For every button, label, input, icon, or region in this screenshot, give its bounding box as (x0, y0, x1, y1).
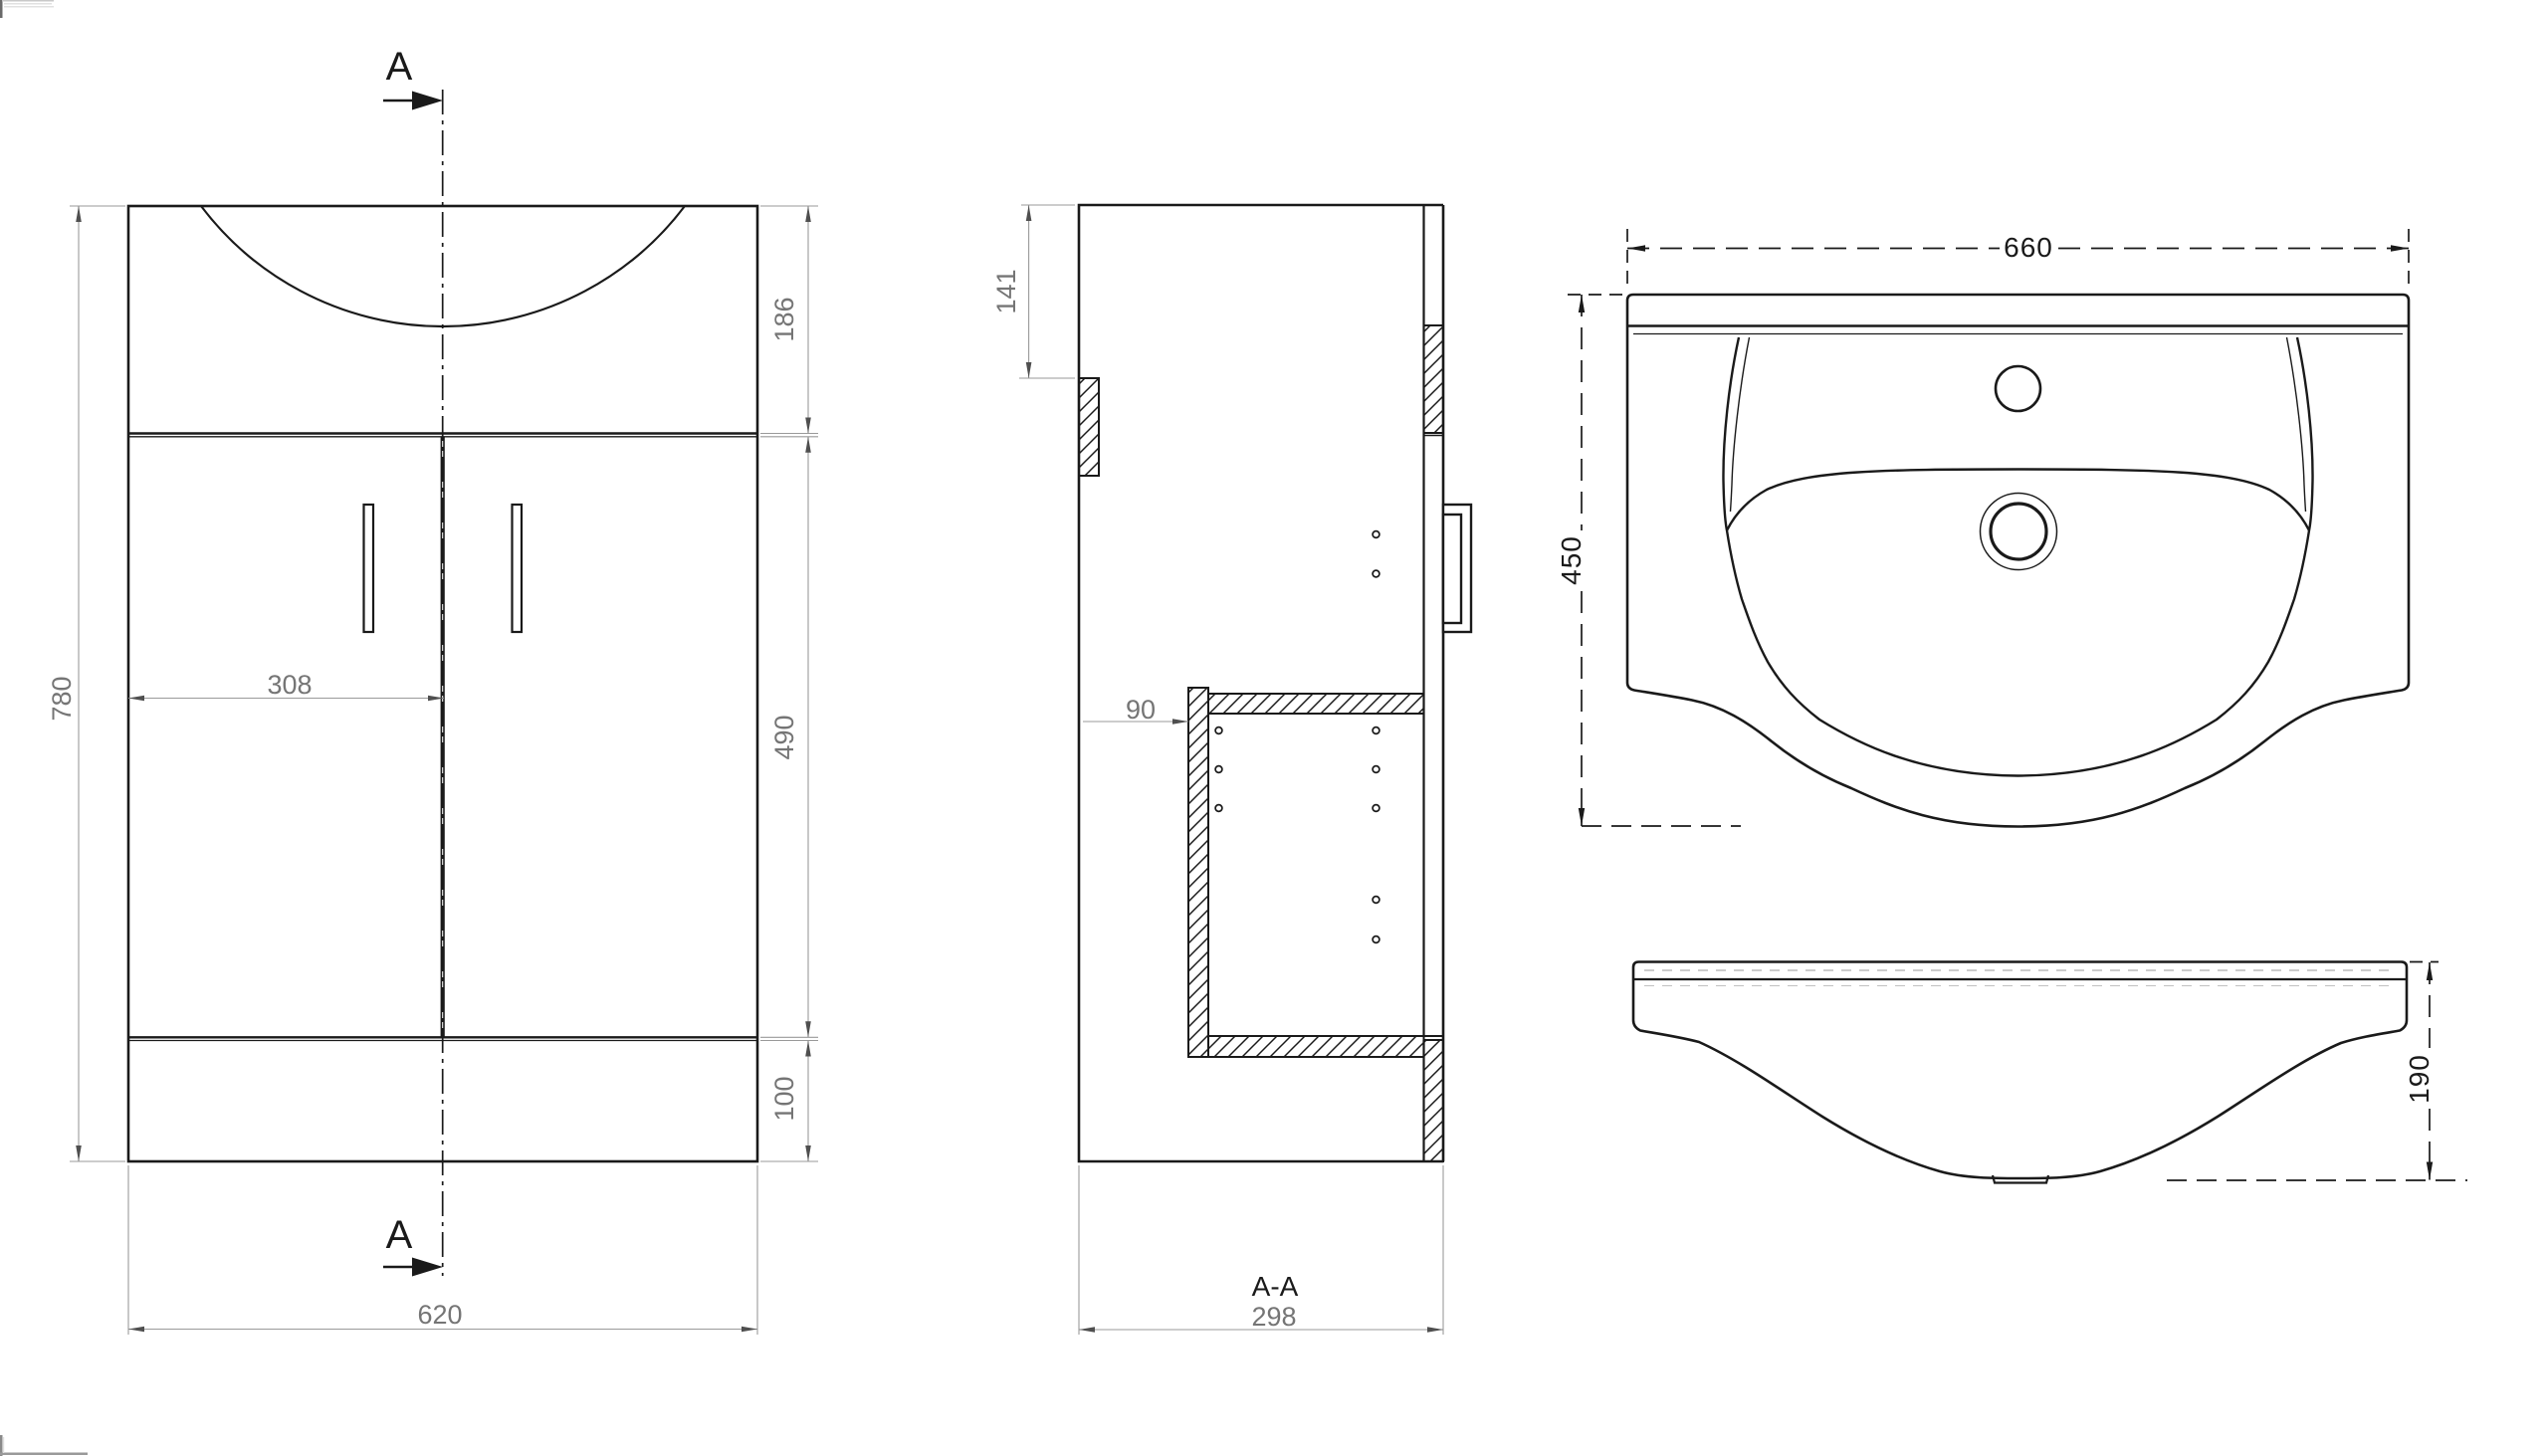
svg-text:308: 308 (267, 670, 312, 700)
svg-text:100: 100 (769, 1076, 799, 1121)
svg-text:620: 620 (417, 1300, 462, 1330)
svg-text:A-A: A-A (1252, 1271, 1299, 1302)
svg-text:186: 186 (769, 297, 799, 341)
svg-text:A: A (386, 45, 413, 89)
svg-text:190: 190 (2404, 1054, 2435, 1104)
svg-text:780: 780 (47, 676, 77, 721)
svg-text:A: A (386, 1213, 413, 1257)
svg-text:450: 450 (1556, 535, 1587, 585)
svg-text:298: 298 (1251, 1302, 1296, 1332)
svg-text:90: 90 (1126, 695, 1156, 725)
svg-text:490: 490 (769, 715, 799, 759)
svg-text:141: 141 (991, 269, 1021, 313)
svg-text:660: 660 (2004, 232, 2053, 263)
